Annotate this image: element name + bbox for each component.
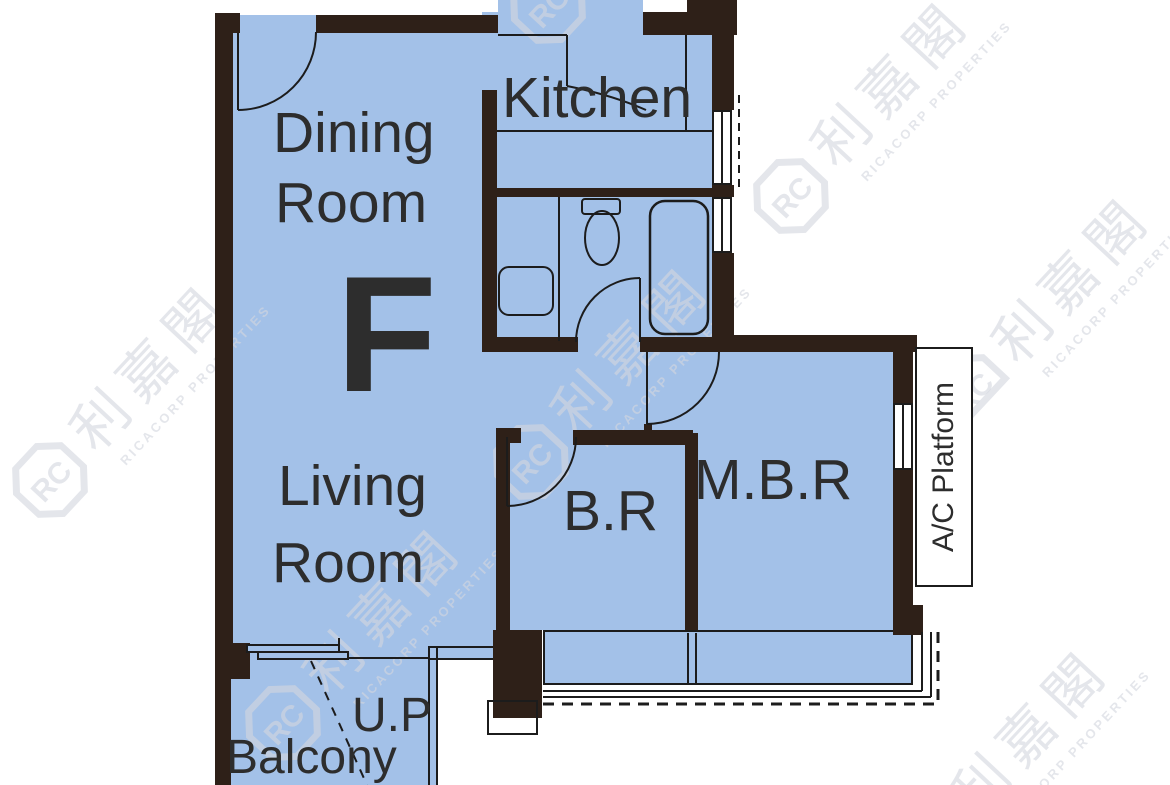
- svg-text:RC: RC: [766, 171, 820, 225]
- mbr-window: [893, 403, 913, 470]
- wall-mbr-door-nub: [644, 424, 652, 434]
- living-room-label-line2: Room: [272, 535, 424, 592]
- dining-room-label-line2: Room: [275, 175, 427, 232]
- master-bedroom-label: M.B.R: [694, 452, 852, 509]
- bathroom-window: [712, 197, 732, 253]
- wall-bath-top: [497, 188, 732, 197]
- wall-entry-right: [643, 12, 737, 35]
- wall-br-top: [573, 430, 693, 445]
- ricacorp-logo-icon: RC: [0, 429, 101, 531]
- wall-dining-kitchen: [482, 90, 497, 352]
- kitchen-label: Kitchen: [502, 70, 692, 127]
- wall-bath-bottom-left: [497, 337, 578, 352]
- watermark-english: RICACORP PROPERTIES: [1039, 214, 1170, 380]
- wall-entry-right-upper: [687, 0, 737, 12]
- wall-br-left: [496, 428, 510, 630]
- wall-mbr-top: [718, 335, 917, 352]
- wall-left: [215, 15, 233, 643]
- watermark-english: RICACORP PROPERTIES: [997, 667, 1154, 785]
- living-room-label-line1: Living: [278, 458, 427, 515]
- ricacorp-logo-icon: RC: [740, 145, 842, 247]
- wall-balcony-corner: [215, 643, 250, 679]
- dining-room-label-line1: Dining: [273, 105, 435, 162]
- wall-top-mid: [316, 15, 498, 33]
- ac-platform-label: A/C Platform: [929, 382, 959, 552]
- kitchen-window: [712, 110, 732, 185]
- watermark-chinese: 利嘉閣: [803, 0, 983, 177]
- wall-mbr-right-upper: [893, 352, 913, 403]
- balcony-label: Balcony: [226, 734, 397, 782]
- ac-platform-box: A/C Platform: [915, 347, 973, 587]
- unit-letter-label: F: [336, 252, 437, 417]
- floor-entrance-lobby: [498, 0, 643, 35]
- bedroom-label: B.R: [563, 483, 658, 540]
- watermark-chinese: 利嘉閣: [942, 639, 1122, 785]
- watermark: RC 利嘉閣 RICACORP PROPERTIES: [740, 0, 1114, 273]
- floor-plan-canvas: RC 利嘉閣 RICACORP PROPERTIES RC 利嘉閣 RICACO…: [0, 0, 1170, 785]
- floor-kitchen-bath: [482, 12, 732, 352]
- watermark-english: RICACORP PROPERTIES: [858, 18, 1015, 184]
- wall-kitchen-right: [712, 35, 734, 110]
- bay-window-band: [543, 630, 913, 685]
- watermark-chinese: 利嘉閣: [984, 186, 1164, 373]
- wall-mbr-corner-block: [893, 605, 923, 635]
- svg-text:RC: RC: [25, 455, 79, 509]
- pillar-base-outline: [487, 700, 538, 735]
